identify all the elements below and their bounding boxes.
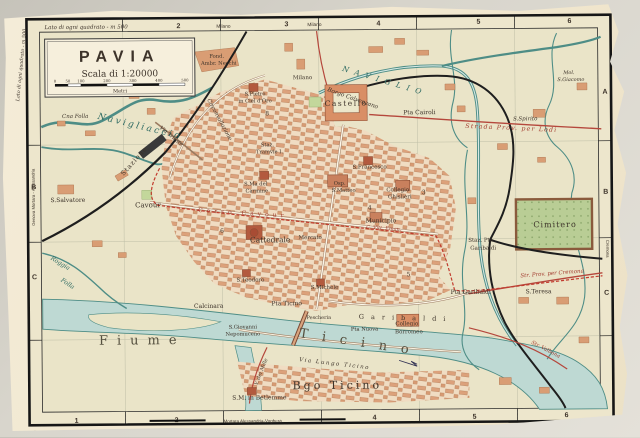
- scale-tick-200: 200: [103, 78, 111, 83]
- grid-right-B: B: [603, 189, 608, 196]
- label-cimitero: Cimitero: [533, 220, 576, 229]
- scale-tick-300: 300: [129, 78, 137, 83]
- milano-marker-1: Milano: [216, 24, 231, 30]
- label-bgo-ticino: Bgo Ticino: [293, 379, 383, 393]
- grid-bottom-6: 6: [565, 412, 569, 419]
- label-staz-tramvie-1: Staz.: [261, 142, 275, 148]
- map-paper-sheet: Navigliaccio NAVIGLIO Roggia Folla Fiume…: [0, 2, 635, 435]
- label-s-pietro-1: S.Pietro: [245, 91, 266, 97]
- label-s-giovanni-2: Nepomuceno: [226, 331, 261, 337]
- label-osp-matteo-2: S.Matteo: [332, 188, 356, 194]
- label-staz-tramvie-2: Tramvie I.: [256, 149, 283, 155]
- label-collegio-ghislieri-1: Collegio: [386, 187, 410, 193]
- grid-left-C: C: [32, 274, 37, 281]
- grid-bottom-5: 5: [473, 414, 477, 421]
- label-s-teresa: S.Teresa: [526, 288, 552, 295]
- index-3: 3: [422, 189, 426, 196]
- label-calcinara: Calcinara: [194, 303, 224, 310]
- label-mercato: Mercato: [298, 235, 322, 241]
- label-s-m-betlemme: S.M. in Betlemme: [232, 394, 287, 401]
- credit-left: PROPR. DEL T.C.I. RIPROD. VIET.: [34, 429, 131, 434]
- grid-top-2: 2: [177, 23, 181, 30]
- grid-top-5: 5: [476, 19, 480, 26]
- label-castello: Castello: [325, 99, 368, 108]
- label-s-giovanni-1: S.Giovanni: [229, 324, 258, 330]
- grid-top-6: 6: [567, 18, 571, 25]
- label-s-michele: S.Michele: [311, 285, 339, 291]
- index-8: 8: [265, 110, 269, 117]
- label-pta-nuova: Pta Nuova: [351, 327, 378, 333]
- scale-tick-400: 400: [155, 78, 163, 83]
- label-cattedrale: Cattedrale: [250, 235, 291, 244]
- scale-tick-50: 50: [65, 78, 70, 83]
- label-pta-garibaldi: Pta Garibaldi: [451, 289, 491, 296]
- label-fond-necchi-2: Ambr. Necchi: [200, 61, 237, 67]
- label-milano-road: Milano: [293, 75, 313, 81]
- label-collegio-ghislieri-2: Ghislieri: [388, 194, 412, 200]
- label-s-teodoro: S.Teodoro: [237, 277, 266, 283]
- grid-right-C: C: [604, 290, 609, 297]
- label-s-spirito: S.Spirito: [513, 116, 538, 122]
- map-title: PAVIA: [79, 48, 161, 66]
- label-s-salvatore: S.Salvatore: [50, 197, 85, 204]
- grid-bottom-1: 1: [75, 418, 79, 425]
- label-mol-giacomo-1: Mol.: [562, 70, 575, 76]
- pavia-map: Navigliaccio NAVIGLIO Roggia Folla Fiume…: [0, 2, 635, 435]
- label-s-francesco: S.Francesco: [353, 164, 388, 170]
- label-fond-necchi-1: Fond.: [209, 54, 224, 60]
- grid-top-3: 3: [285, 21, 289, 28]
- index-4: 4: [368, 205, 372, 212]
- grid-bottom-4: 4: [373, 415, 377, 422]
- map-scale: Scala di 1:20000: [82, 69, 159, 80]
- label-s-ma-carmine-1: S.Ma del: [244, 181, 268, 187]
- title-box: PAVIA Scala di 1:20000 0 50 100 200 300 …: [45, 38, 195, 97]
- index-6: 6: [220, 228, 224, 235]
- label-collegio-borromeo-2: Borromeo: [395, 329, 423, 335]
- scale-tick-500: 500: [181, 78, 189, 83]
- rail-destination-left: Genova Mortara - Alessandria: [31, 168, 36, 226]
- grid-right-A: A: [602, 89, 607, 96]
- rail-bottom-text: Mortara Alessandria-Voghera: [223, 418, 282, 423]
- label-staz-garibaldi-1: Staz. Pta: [468, 238, 494, 244]
- label-collegio-borromeo-1: Collegio: [395, 321, 419, 327]
- label-s-pietro-2: in Ciel d'Oro: [238, 98, 271, 104]
- label-osp-matteo-1: Osp.: [334, 181, 346, 187]
- label-cavour: Cavour: [135, 201, 161, 209]
- scale-tick-100: 100: [77, 78, 85, 83]
- label-mol-giacomo-2: S.Giacomo: [557, 77, 584, 83]
- label-pta-ticino: Pta Ticino: [271, 300, 302, 307]
- label-s-ma-carmine-2: Carmine: [246, 188, 269, 194]
- label-pta-cairoli: Pta Cairoli: [403, 109, 435, 116]
- rail-destination-right: Cremona: [605, 240, 610, 258]
- milano-marker-2: Milano: [307, 22, 322, 28]
- credit-right: STAMPA - ANTONIO VALLARDI - MILANO: [507, 424, 608, 430]
- label-cna-folla: Cna Folla: [62, 114, 88, 120]
- label-fiume: Fiume: [99, 333, 186, 349]
- square-note-top: Lato di ogni quadrato - m 500: [43, 24, 128, 31]
- index-5: 5: [406, 271, 410, 278]
- grid-top-4: 4: [376, 21, 380, 28]
- label-pescheria: Pescheria: [306, 315, 331, 321]
- label-municipio: Municipio: [366, 217, 397, 224]
- label-staz-garibaldi-2: Garibaldi: [470, 246, 496, 252]
- scale-unit: Metri: [113, 88, 128, 94]
